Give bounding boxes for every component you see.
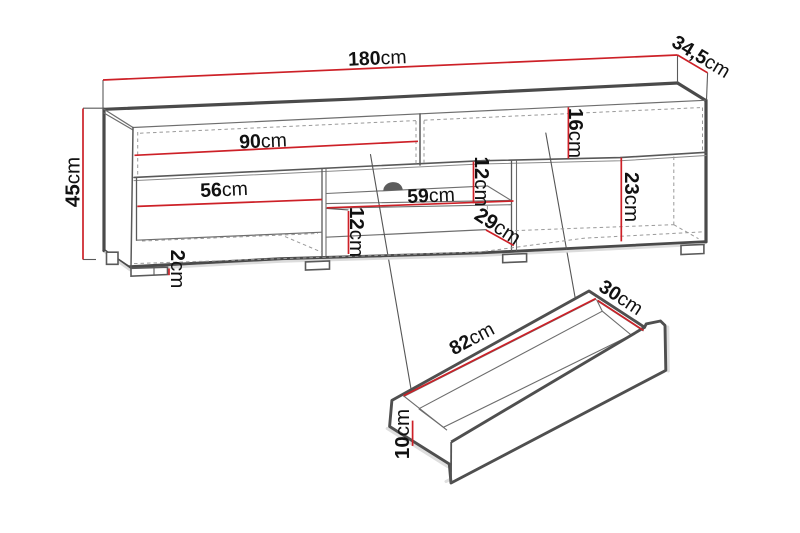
svg-text:180cm: 180cm: [348, 46, 407, 71]
svg-text:56cm: 56cm: [200, 178, 249, 202]
svg-text:90cm: 90cm: [239, 129, 288, 153]
svg-text:23cm: 23cm: [621, 172, 644, 222]
svg-text:16cm: 16cm: [565, 108, 588, 158]
svg-text:2cm: 2cm: [167, 250, 190, 289]
svg-text:12cm: 12cm: [346, 207, 369, 257]
svg-text:10cm: 10cm: [391, 409, 414, 459]
svg-text:45cm: 45cm: [61, 157, 84, 207]
svg-text:12cm: 12cm: [471, 156, 494, 206]
svg-text:59cm: 59cm: [407, 184, 456, 208]
